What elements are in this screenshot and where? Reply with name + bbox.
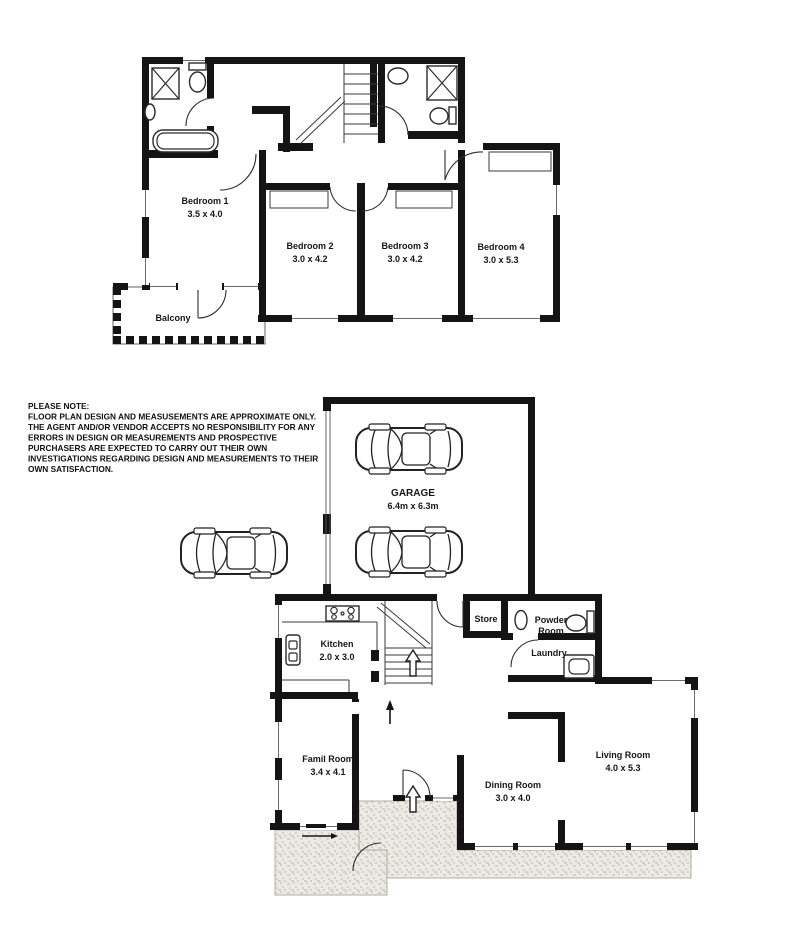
robe-bedroom3 (396, 191, 452, 208)
family-room-label: Famil Room (302, 754, 354, 764)
bedroom4-dims: 3.0 x 5.3 (483, 255, 518, 265)
bedroom4-label: Bedroom 4 (477, 242, 524, 252)
toilet-cistern-icon (587, 611, 594, 633)
laundry-label: Laundry (531, 648, 567, 658)
family-room-dims: 3.4 x 4.1 (310, 767, 345, 777)
dining-room-label: Dining Room (485, 780, 541, 790)
bedroom2-dims: 3.0 x 4.2 (292, 254, 327, 264)
car-icon (356, 424, 462, 474)
car-icon (356, 527, 462, 577)
toilet-cistern-icon (189, 63, 206, 70)
floor-plan-page: Bedroom 1 3.5 x 4.0 Bedroom 2 3.0 x 4.2 … (0, 0, 800, 931)
living-room-dims: 4.0 x 5.3 (605, 763, 640, 773)
note-line: ERRORS IN DESIGN OR MEASUREMENTS AND PRO… (28, 433, 278, 443)
powder-room-label2: Room (538, 626, 564, 636)
basin-icon (388, 68, 408, 84)
bedroom1-dims: 3.5 x 4.0 (187, 209, 222, 219)
garage-label: GARAGE (391, 488, 435, 499)
living-room-label: Living Room (596, 750, 651, 760)
garage-dims: 6.4m x 6.3m (387, 501, 438, 511)
basin-icon (515, 611, 527, 630)
note-line: THE AGENT AND/OR VENDOR ACCEPTS NO RESPO… (28, 422, 316, 432)
car-icon (181, 528, 287, 578)
kitchen-label: Kitchen (320, 639, 353, 649)
note-heading: PLEASE NOTE: (28, 401, 89, 411)
powder-room-label: Powder (535, 615, 568, 625)
bedroom1-label: Bedroom 1 (181, 196, 228, 206)
bedroom2-label: Bedroom 2 (286, 241, 333, 251)
robe-bedroom2 (270, 191, 328, 208)
toilet-icon (430, 108, 448, 124)
disclaimer-note: PLEASE NOTE: FLOOR PLAN DESIGN AND MEASU… (28, 401, 318, 474)
balcony-label: Balcony (155, 313, 190, 323)
bedroom3-dims: 3.0 x 4.2 (387, 254, 422, 264)
note-line: FLOOR PLAN DESIGN AND MEASUSEMENTS ARE A… (28, 412, 316, 422)
store-label: Store (474, 614, 497, 624)
dining-room-dims: 3.0 x 4.0 (495, 793, 530, 803)
robe-bedroom4 (489, 152, 551, 171)
toilet-icon (566, 615, 586, 631)
note-line: INVESTIGATIONS REGARDING DESIGN AND MEAS… (28, 454, 318, 464)
floor-plan-svg: Bedroom 1 3.5 x 4.0 Bedroom 2 3.0 x 4.2 … (0, 0, 800, 931)
kitchen-dims: 2.0 x 3.0 (319, 652, 354, 662)
toilet-icon (190, 72, 206, 92)
note-line: PURCHASERS ARE EXPECTED TO CARRY OUT THE… (28, 443, 267, 453)
basin-icon (145, 104, 155, 120)
note-line: OWN SATISFACTION. (28, 464, 113, 474)
toilet-cistern-icon (449, 107, 456, 124)
bedroom3-label: Bedroom 3 (381, 241, 428, 251)
